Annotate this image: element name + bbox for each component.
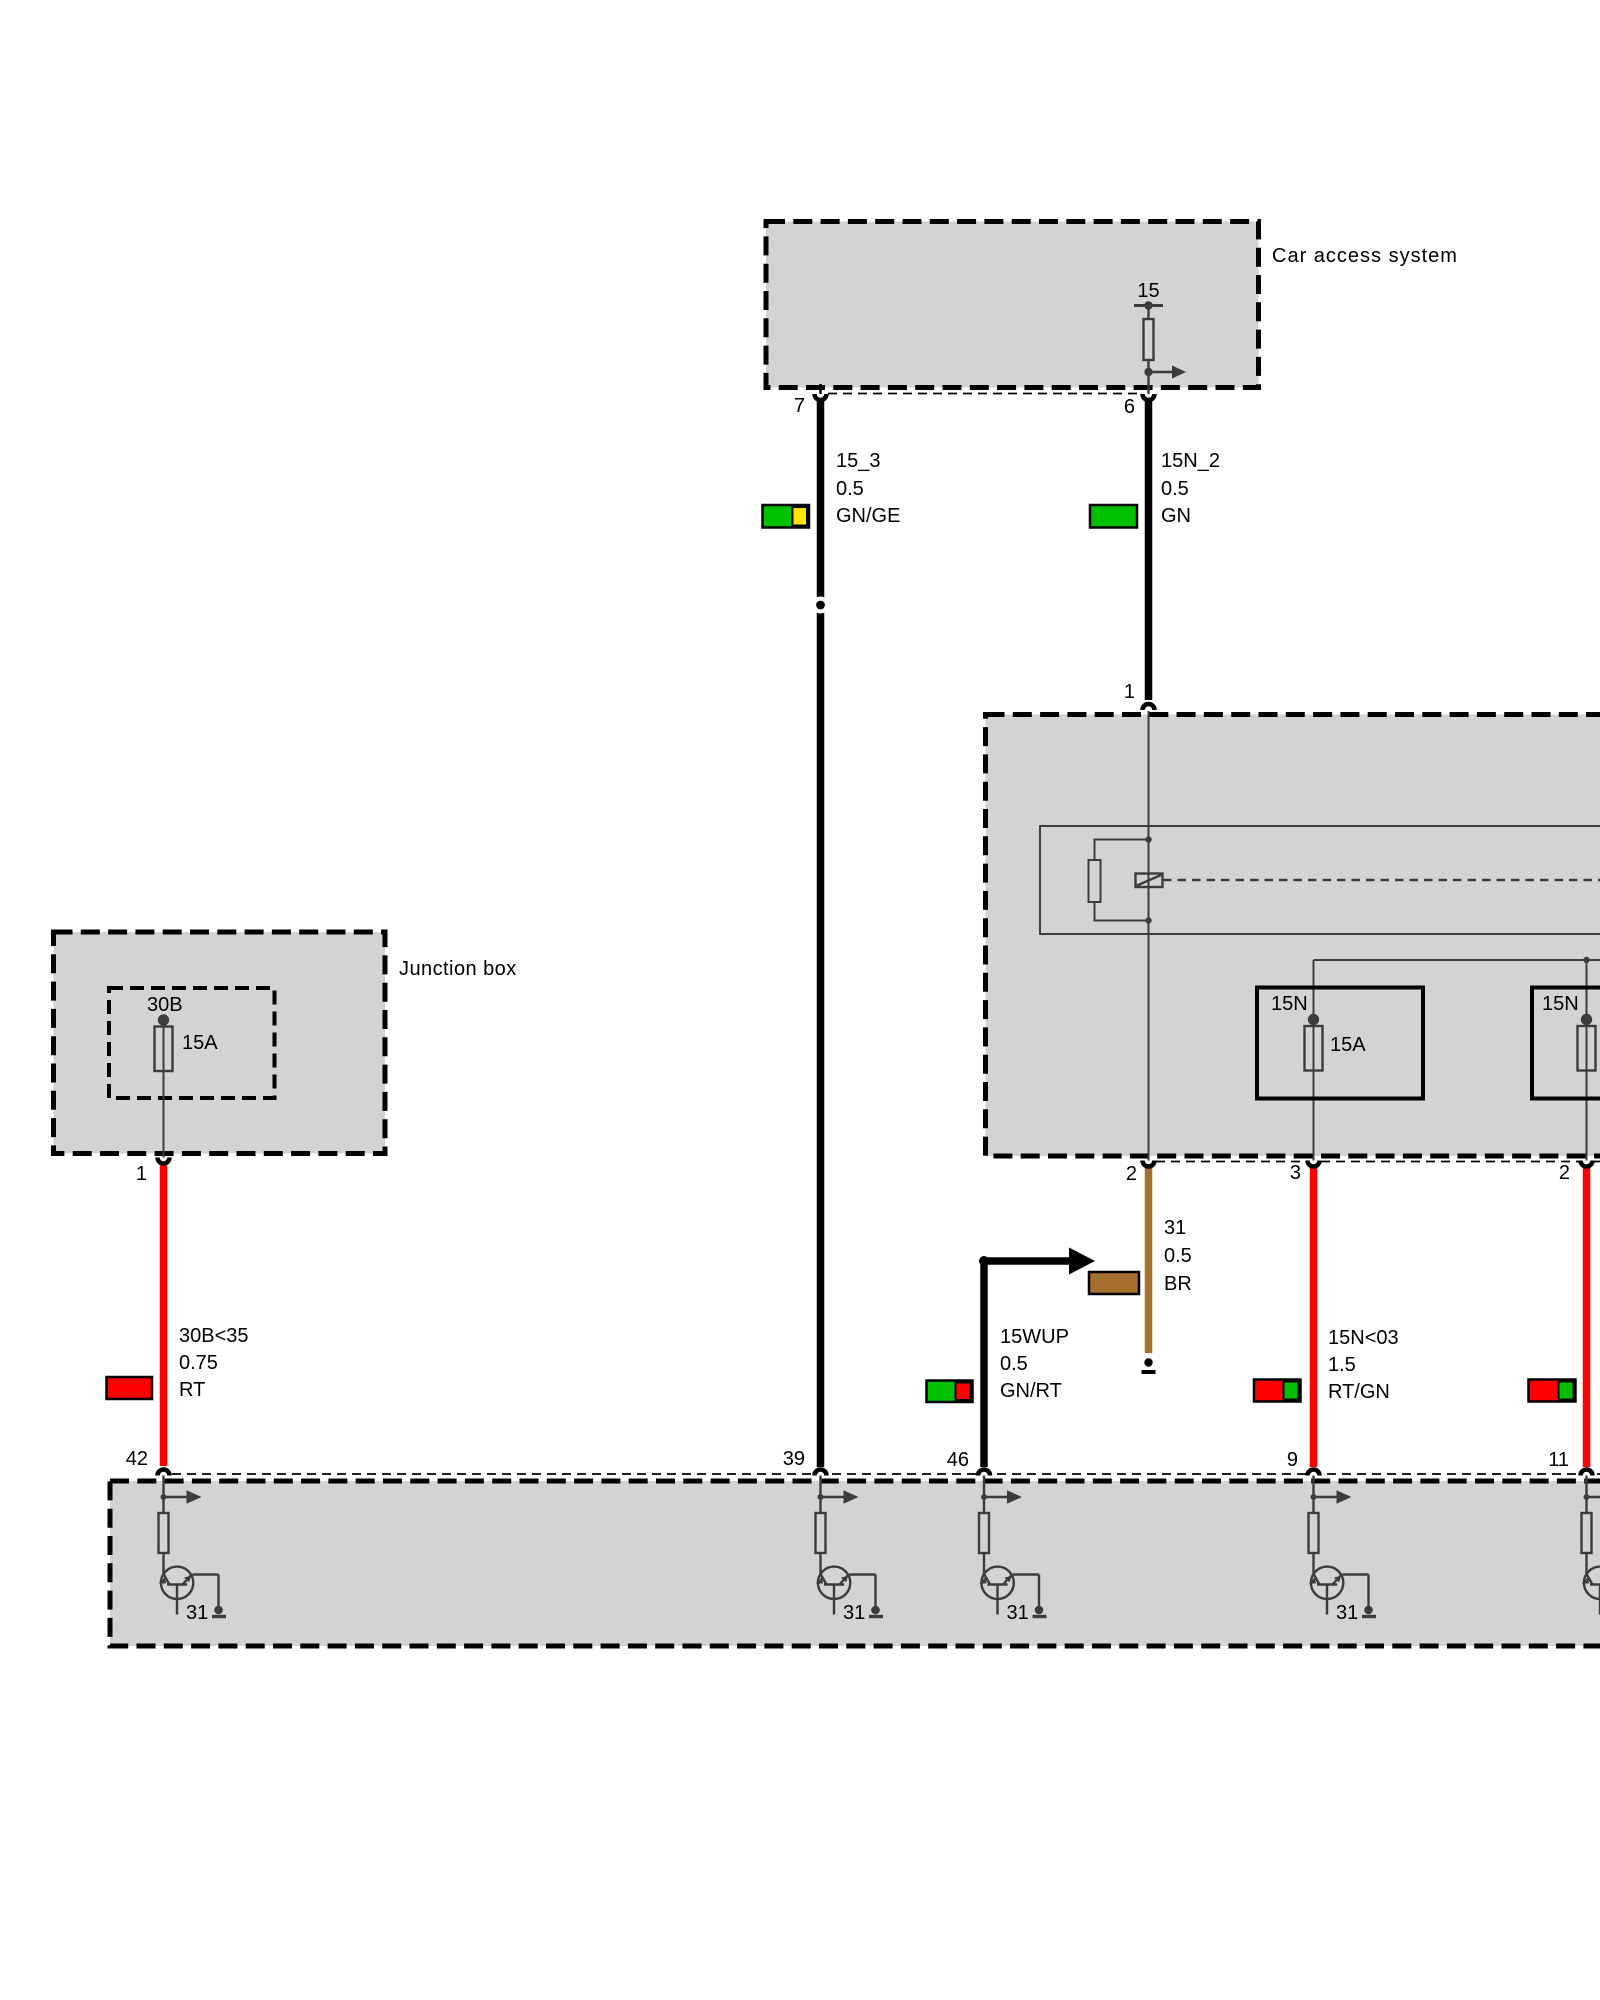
svg-text:0.75: 0.75 [179,1352,218,1374]
svg-text:15A: 15A [182,1032,218,1054]
svg-text:15A: 15A [1330,1034,1366,1056]
svg-text:30B<35: 30B<35 [179,1325,249,1347]
svg-text:31: 31 [1336,1602,1358,1624]
svg-text:0.5: 0.5 [1164,1245,1192,1267]
svg-text:0.5: 0.5 [1000,1353,1028,1375]
svg-text:3: 3 [1290,1162,1301,1184]
svg-text:30B: 30B [147,994,183,1016]
svg-text:RT: RT [179,1379,205,1401]
svg-text:1.5: 1.5 [1328,1354,1356,1376]
svg-text:39: 39 [783,1448,805,1470]
svg-text:15N: 15N [1271,993,1308,1015]
svg-text:31: 31 [1007,1602,1029,1624]
svg-text:0.5: 0.5 [1161,478,1189,500]
svg-text:Car access system: Car access system [1272,245,1458,267]
svg-text:1: 1 [1124,681,1135,703]
svg-text:15: 15 [1137,280,1159,302]
svg-text:31: 31 [1164,1217,1186,1239]
svg-text:7: 7 [794,395,805,417]
svg-text:15_3: 15_3 [836,450,881,472]
svg-text:GN: GN [1161,505,1191,527]
svg-text:15N_2: 15N_2 [1161,450,1220,472]
svg-text:15N: 15N [1542,993,1579,1015]
svg-text:15N<03: 15N<03 [1328,1327,1399,1349]
svg-text:46: 46 [947,1449,969,1471]
svg-text:Junction box: Junction box [399,958,517,980]
svg-text:2: 2 [1126,1163,1137,1185]
svg-text:0.5: 0.5 [836,478,864,500]
svg-text:GN/GE: GN/GE [836,505,900,527]
svg-text:1: 1 [136,1163,147,1185]
svg-text:42: 42 [126,1448,148,1470]
svg-text:2: 2 [1559,1162,1570,1184]
svg-text:6: 6 [1124,396,1135,418]
svg-text:GN/RT: GN/RT [1000,1380,1062,1402]
svg-text:9: 9 [1287,1449,1298,1471]
svg-text:15WUP: 15WUP [1000,1326,1069,1348]
svg-text:11: 11 [1548,1449,1569,1471]
svg-text:31: 31 [843,1602,865,1624]
svg-text:31: 31 [186,1602,208,1624]
svg-text:RT/GN: RT/GN [1328,1381,1390,1403]
svg-text:BR: BR [1164,1273,1192,1295]
